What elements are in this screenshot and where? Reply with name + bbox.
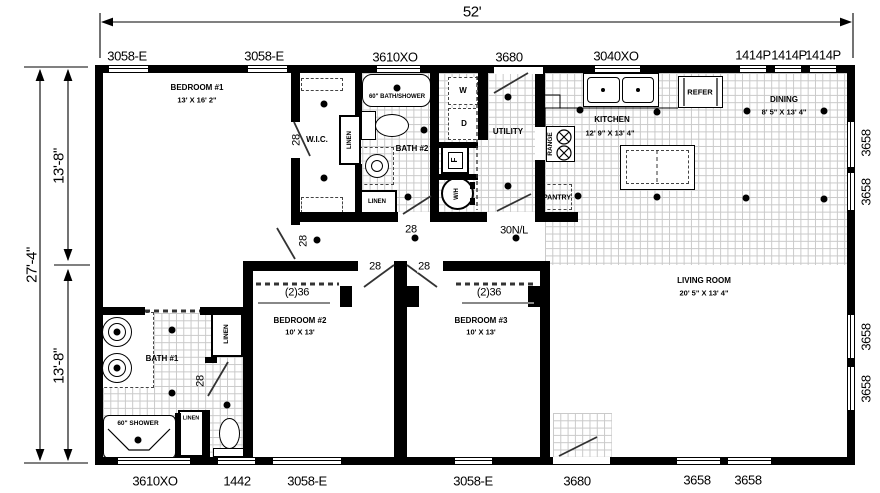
refer-label: REFER (687, 88, 712, 96)
furnace-label: F (451, 158, 459, 163)
room-dims-kitchen: 12' 9" X 13' 4" (585, 129, 634, 137)
ceiling-fixture-dot (169, 327, 176, 334)
room-label-bath2: BATH #2 (396, 145, 429, 153)
room-dims-dining: 8' 5" X 13' 4" (762, 108, 807, 116)
door-label-utility: 30N/L (500, 226, 528, 237)
floor-plan: 52' 27'-4" 13'-8" 13'-8" 3058-E 3058-E 3… (0, 0, 880, 493)
closet-door-label-bedroom2: (2)36 (285, 288, 309, 299)
opening-label: 3658 (860, 129, 873, 156)
ceiling-fixture-dot (744, 108, 751, 115)
dim-overall-width: 52' (463, 5, 481, 20)
linen-label: LINEN (347, 131, 353, 149)
shower-label: 60" SHOWER (117, 421, 158, 428)
opening-label: 3658 (860, 178, 873, 205)
room-dims-bedroom1: 13' X 16' 2" (177, 96, 216, 104)
room-dims-bedroom2: 10' X 13' (285, 328, 314, 336)
opening-label: 1442 (223, 475, 250, 488)
room-label-pantry: PANTRY (543, 195, 571, 202)
ceiling-fixture-dot (394, 85, 401, 92)
ceiling-fixture-dot (743, 195, 750, 202)
washer-label: W (459, 87, 467, 95)
room-label-bath1: BATH #1 (146, 355, 179, 363)
room-label-dining: DINING (770, 96, 798, 104)
opening-label: 3610XO (372, 51, 417, 64)
opening-label: 1414P (771, 49, 807, 62)
door-label-bedroom2: 28 (368, 262, 382, 273)
dimension-lines (24, 13, 853, 463)
water-heater-label: W/H (454, 188, 460, 200)
room-dims-living: 20' 5" X 13' 4" (679, 289, 728, 297)
closet-door-label-bedroom3: (2)36 (477, 288, 501, 299)
ceiling-fixture-dot (314, 237, 321, 244)
ceiling-fixture-dot (421, 127, 428, 134)
dim-overall-depth: 27'-4" (25, 247, 40, 283)
ceiling-fixture-dot (654, 194, 661, 201)
ceiling-fixture-dot (505, 94, 512, 101)
door-label-bedroom3: 28 (417, 262, 431, 273)
opening-label: 3658 (683, 474, 710, 487)
opening-label: 3610XO (132, 475, 177, 488)
ceiling-fixture-dot (577, 107, 584, 114)
opening-label: 3658 (860, 375, 873, 402)
door-label-bath1-toilet: 28 (196, 375, 207, 387)
room-label-bedroom1: BEDROOM #1 (171, 84, 224, 92)
opening-label: 3058-E (107, 50, 147, 63)
opening-label: 3658 (860, 323, 873, 350)
ceiling-fixture-dot (169, 390, 176, 397)
ceiling-fixture-dot (321, 175, 328, 182)
linen-label: LINEN (183, 416, 200, 422)
opening-label: 3058-E (244, 50, 284, 63)
room-label-wic: W.I.C. (306, 136, 328, 144)
door-label-bath2: 28 (405, 225, 417, 236)
opening-label: 3058-E (287, 475, 327, 488)
room-dims-bedroom3: 10' X 13' (466, 328, 495, 336)
dim-depth-lower: 13'-8" (52, 348, 67, 384)
tub-label: 60" BATH/SHOWER (369, 94, 425, 100)
room-label-bedroom3: BEDROOM #3 (455, 317, 508, 325)
ceiling-fixture-dot (135, 437, 142, 444)
linen-label: LINEN (368, 199, 386, 205)
ceiling-fixture-dot (224, 402, 231, 409)
opening-label: 3058-E (453, 475, 493, 488)
dryer-label: D (461, 120, 467, 128)
ceiling-fixture-dot (821, 108, 828, 115)
door-label-bedroom1: 28 (299, 235, 310, 247)
ceiling-fixture-dot (821, 196, 828, 203)
ceiling-fixture-dot (405, 194, 412, 201)
opening-label: 3680 (495, 51, 522, 64)
opening-label: 1414P (805, 49, 841, 62)
opening-label: 3040XO (593, 50, 638, 63)
ceiling-fixture-dot (321, 101, 328, 108)
dim-depth-upper: 13'-8" (52, 148, 67, 184)
range-label: RANGE (548, 132, 555, 155)
ceiling-fixture-dot (654, 109, 661, 116)
room-label-utility: UTILITY (493, 128, 523, 136)
linen-label: LINEN (224, 324, 231, 344)
opening-label: 3658 (734, 474, 761, 487)
room-label-bedroom2: BEDROOM #2 (274, 317, 327, 325)
ceiling-fixture-dot (505, 183, 512, 190)
opening-label: 1414P (735, 49, 771, 62)
door-swing (208, 73, 597, 456)
ceiling-fixture-dot (412, 235, 419, 242)
room-label-living: LIVING ROOM (677, 277, 731, 285)
door-label-wic: 28 (292, 134, 303, 146)
ceiling-fixture-dot (575, 193, 582, 200)
room-label-kitchen: KITCHEN (594, 116, 630, 124)
opening-label: 3680 (563, 475, 590, 488)
